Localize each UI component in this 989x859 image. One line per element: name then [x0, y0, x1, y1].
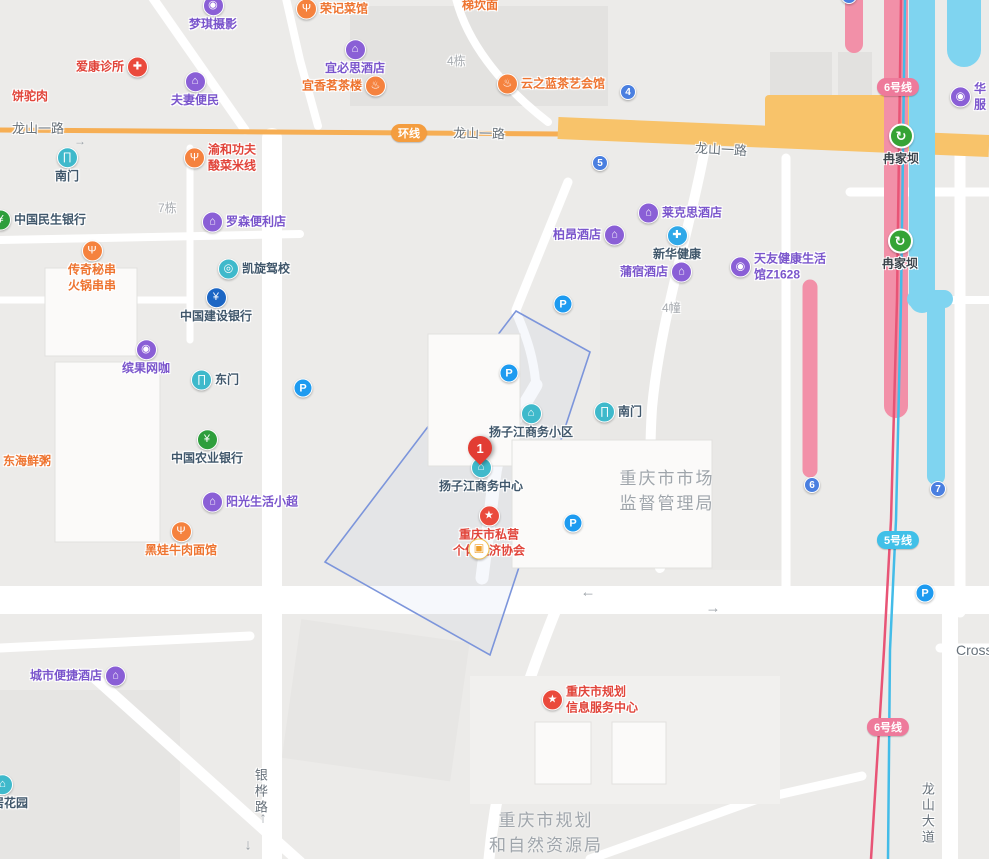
- metro-station-ranjiaba-1[interactable]: ↻ 冉家坝: [883, 124, 919, 167]
- search-result-marker-1[interactable]: 1: [468, 436, 492, 460]
- area-label-line1: 重庆市规划: [499, 806, 594, 831]
- poi-huafu[interactable]: ◉ 华 服: [950, 81, 986, 112]
- exit-badge-5[interactable]: 5: [592, 155, 608, 171]
- metro-station-icon: ↻: [888, 124, 913, 149]
- poi-city-comfort-hotel[interactable]: 城市便捷酒店 ⌂: [30, 666, 126, 687]
- road-label-cross: Cross: [956, 641, 989, 659]
- poi-yixiang-teahouse[interactable]: 宜香茗茶楼 ♨: [302, 76, 386, 97]
- poi-yuhe-gongfu-noodles[interactable]: Ψ 渝和功夫 酸菜米线: [184, 142, 256, 173]
- exit-badge-6[interactable]: 6: [804, 477, 820, 493]
- poi-label: 饼驼肉: [12, 89, 48, 105]
- poi-planning-info-center[interactable]: ★ 重庆市规划 信息服务中心: [542, 684, 638, 715]
- exit-badge-7[interactable]: 7: [930, 481, 946, 497]
- poi-tianyou-health-store[interactable]: ◉ 天友健康生活 馆Z1628: [730, 251, 826, 282]
- poi-abc-bank[interactable]: ¥ 中国农业银行: [171, 429, 243, 467]
- poi-label-line2: 火锅串串: [68, 278, 116, 294]
- poi-rongji-restaurant[interactable]: Ψ 荣记菜馆: [296, 0, 368, 20]
- building-icon: ⌂: [0, 774, 13, 795]
- clinic-cross-icon: ✚: [127, 57, 148, 78]
- poi-chuanqi-hotpot[interactable]: Ψ 传奇秘串 火锅串串: [68, 240, 116, 293]
- map-app: { "pois": { "mengqi": {"label": "梦琪摄影", …: [0, 0, 989, 859]
- poi-label: 东门: [215, 372, 239, 388]
- poi-binguo-internet-cafe[interactable]: ◉ 缤果网咖: [122, 339, 170, 377]
- shop-icon: ⌂: [184, 71, 205, 92]
- direction-arrow-right-icon: →: [706, 600, 721, 617]
- shop-icon: ◉: [730, 257, 751, 278]
- building-label-4zhuang: 4幢: [662, 301, 681, 317]
- poi-lawson-store[interactable]: ⌂ 罗森便利店: [202, 212, 286, 233]
- pill-icon: ✚: [666, 225, 687, 246]
- poi-fuqi-bianmin[interactable]: ⌂ 夫妻便民: [171, 71, 219, 109]
- poi-label: 爱康诊所: [76, 59, 124, 75]
- poi-heiwa-beef-noodles[interactable]: Ψ 黑娃牛肉面馆: [145, 521, 217, 559]
- shop-icon: ⌂: [202, 492, 223, 513]
- poi-label-line1: 渝和功夫: [208, 142, 256, 158]
- ring-road-badge: 环线: [391, 124, 427, 142]
- poi-label: 南门: [618, 404, 642, 420]
- restaurant-icon: Ψ: [184, 148, 205, 169]
- poi-label: 蒲宿酒店: [620, 264, 668, 280]
- poi-label: 夫妻便民: [171, 93, 219, 109]
- poi-label-line2: 酸菜米线: [208, 158, 256, 174]
- poi-xinhua-health[interactable]: ✚ 新华健康: [653, 225, 701, 263]
- direction-arrow-right-icon: →: [74, 134, 86, 148]
- poi-label: 扬子江商务小区: [489, 425, 573, 441]
- poi-label: 居花园: [0, 796, 28, 812]
- poi-east-gate[interactable]: ∏ 东门: [191, 370, 239, 391]
- station-label: 冉家坝: [883, 150, 919, 167]
- parking-icon[interactable]: P: [554, 295, 573, 314]
- restaurant-icon: Ψ: [170, 521, 191, 542]
- poi-label: 中国农业银行: [171, 451, 243, 467]
- poi-label-line2: 馆Z1628: [754, 267, 800, 283]
- gate-icon: ∏: [594, 402, 615, 423]
- poi-label: 柏昂酒店: [553, 227, 601, 243]
- metro-line6-badge: 6号线: [877, 78, 919, 96]
- poi-yangzijiang-business-district[interactable]: ⌂ 扬子江商务小区: [489, 403, 573, 441]
- metro-line5-badge: 5号线: [877, 531, 919, 549]
- poi-label: 扬子江商务中心: [439, 479, 523, 495]
- parking-icon[interactable]: P: [916, 584, 935, 603]
- poi-label: 宜香茗茶楼: [302, 78, 362, 94]
- poi-label: 宜必思酒店: [325, 61, 385, 77]
- hotel-icon: ⌂: [671, 262, 692, 283]
- poi-laikesi-hotel[interactable]: ⌂ 莱克思酒店: [638, 203, 722, 224]
- poi-label: 南门: [55, 169, 79, 185]
- area-label-line2: 监督管理局: [620, 489, 715, 514]
- building-icon: ⌂: [520, 403, 541, 424]
- poi-label: 梦琪摄影: [189, 17, 237, 33]
- poi-label: 荣记菜馆: [320, 1, 368, 17]
- parking-icon[interactable]: P: [564, 514, 583, 533]
- camera-icon: ◉: [202, 0, 223, 16]
- poi-boang-hotel[interactable]: 柏昂酒店 ⌂: [553, 225, 625, 246]
- steering-wheel-icon: ◎: [218, 259, 239, 280]
- star-icon: ★: [478, 505, 499, 526]
- poi-juhuayuan[interactable]: ⌂ 居花园: [0, 774, 28, 812]
- direction-arrow-left-icon: ←: [581, 584, 596, 601]
- poi-label: 莱克思酒店: [662, 205, 722, 221]
- poi-label: 云之蓝茶艺会馆: [521, 76, 605, 92]
- convenience-store-icon: ⌂: [202, 212, 223, 233]
- metro-line6-badge: 6号线: [867, 718, 909, 736]
- poi-label: 缤果网咖: [122, 361, 170, 377]
- restaurant-icon: Ψ: [296, 0, 317, 20]
- poi-kaixuan-driving-school[interactable]: ◎ 凯旋驾校: [218, 259, 290, 280]
- star-icon: ★: [542, 690, 563, 711]
- building-label-4dong: 4栋: [447, 54, 466, 70]
- restaurant-icon: Ψ: [81, 240, 102, 261]
- road-label-longshan-dadao: 龙山大道: [918, 782, 935, 846]
- poi-label-line1: 天友健康生活: [754, 251, 826, 267]
- hotel-icon: ⌂: [105, 666, 126, 687]
- area-label-market-regulator: 重庆市市场 监督管理局: [620, 464, 715, 514]
- exit-badge-4[interactable]: 4: [620, 84, 636, 100]
- poi-south-gate-center[interactable]: ∏ 南门: [594, 402, 642, 423]
- poi-label-line2: 信息服务中心: [566, 700, 638, 716]
- metro-station-ranjiaba-2[interactable]: ↻ 冉家坝: [882, 229, 918, 272]
- area-label-line1: 重庆市市场: [620, 464, 715, 489]
- poi-label-line1: 华: [974, 81, 986, 97]
- gate-icon: ∏: [191, 370, 212, 391]
- road-label-longshan-yilu: 龙山一路: [453, 126, 505, 144]
- poi-label: 中国建设银行: [180, 309, 252, 325]
- poi-label: 新华健康: [653, 247, 701, 263]
- poi-label: 阳光生活小超: [226, 494, 298, 510]
- bank-icon: ¥: [205, 287, 226, 308]
- bank-icon: ¥: [196, 429, 217, 450]
- poi-minsheng-bank[interactable]: ¥ 中国民生银行: [0, 210, 86, 231]
- poi-label-line1: 重庆市私营: [459, 527, 519, 543]
- parking-icon[interactable]: P: [500, 364, 519, 383]
- briefcase-icon[interactable]: ▣: [469, 539, 490, 560]
- poi-ccb-bank[interactable]: ¥ 中国建设银行: [180, 287, 252, 325]
- poi-pusu-hotel[interactable]: 蒲宿酒店 ⌂: [620, 262, 692, 283]
- metro-station-icon: ↻: [887, 229, 912, 254]
- bank-icon: ¥: [0, 210, 11, 231]
- marker-pin-icon: 1: [463, 431, 497, 465]
- poi-aikang-clinic[interactable]: 爱康诊所 ✚: [76, 57, 148, 78]
- shop-icon: ◉: [950, 87, 971, 108]
- road-label-yinhua-lu: 银桦路: [251, 768, 268, 816]
- poi-label-line1: 传奇秘串: [68, 262, 116, 278]
- road-label-longshan-yilu: 龙山一路: [12, 121, 64, 138]
- internet-cafe-icon: ◉: [135, 339, 156, 360]
- poi-donghai-porridge[interactable]: 东海鲜粥: [3, 454, 51, 470]
- poi-label: 梯坎面: [462, 0, 498, 14]
- building-label-7dong: 7栋: [158, 201, 177, 217]
- poi-ibis-hotel[interactable]: ⌂ 宜必思酒店: [325, 39, 385, 77]
- marker-number: 1: [476, 441, 483, 456]
- poi-label: 东海鲜粥: [3, 454, 51, 470]
- poi-label-line2: 服: [974, 97, 986, 113]
- area-label-planning-bureau: 重庆市规划 和自然资源局: [489, 806, 603, 856]
- poi-label: 黑娃牛肉面馆: [145, 543, 217, 559]
- direction-arrow-down-icon: ↓: [244, 837, 252, 854]
- poi-south-gate-west[interactable]: ∏ 南门: [55, 147, 79, 185]
- poi-label: 罗森便利店: [226, 214, 286, 230]
- poi-label: 中国民生银行: [14, 212, 86, 228]
- poi-yunzhilan-teahouse[interactable]: ♨ 云之蓝茶艺会馆: [497, 74, 605, 95]
- poi-mengqi-photography[interactable]: ◉ 梦琪摄影: [189, 0, 237, 33]
- poi-tikanmian[interactable]: 梯坎面: [462, 0, 498, 14]
- hotel-icon: ⌂: [604, 225, 625, 246]
- teahouse-icon: ♨: [365, 76, 386, 97]
- poi-label: 凯旋驾校: [242, 261, 290, 277]
- poi-yangguang-supermarket[interactable]: ⌂ 阳光生活小超: [202, 492, 298, 513]
- gate-icon: ∏: [56, 147, 77, 168]
- poi-bingtuorou[interactable]: 饼驼肉: [12, 89, 48, 105]
- hotel-icon: ⌂: [344, 39, 365, 60]
- poi-label-line1: 重庆市规划: [566, 684, 626, 700]
- area-label-line2: 和自然资源局: [489, 831, 603, 856]
- teahouse-icon: ♨: [497, 74, 518, 95]
- road-label-longshan-yilu: 龙山一路: [695, 141, 748, 161]
- poi-label: 城市便捷酒店: [30, 668, 102, 684]
- parking-icon[interactable]: P: [294, 379, 313, 398]
- hotel-icon: ⌂: [638, 203, 659, 224]
- station-label: 冉家坝: [882, 255, 918, 272]
